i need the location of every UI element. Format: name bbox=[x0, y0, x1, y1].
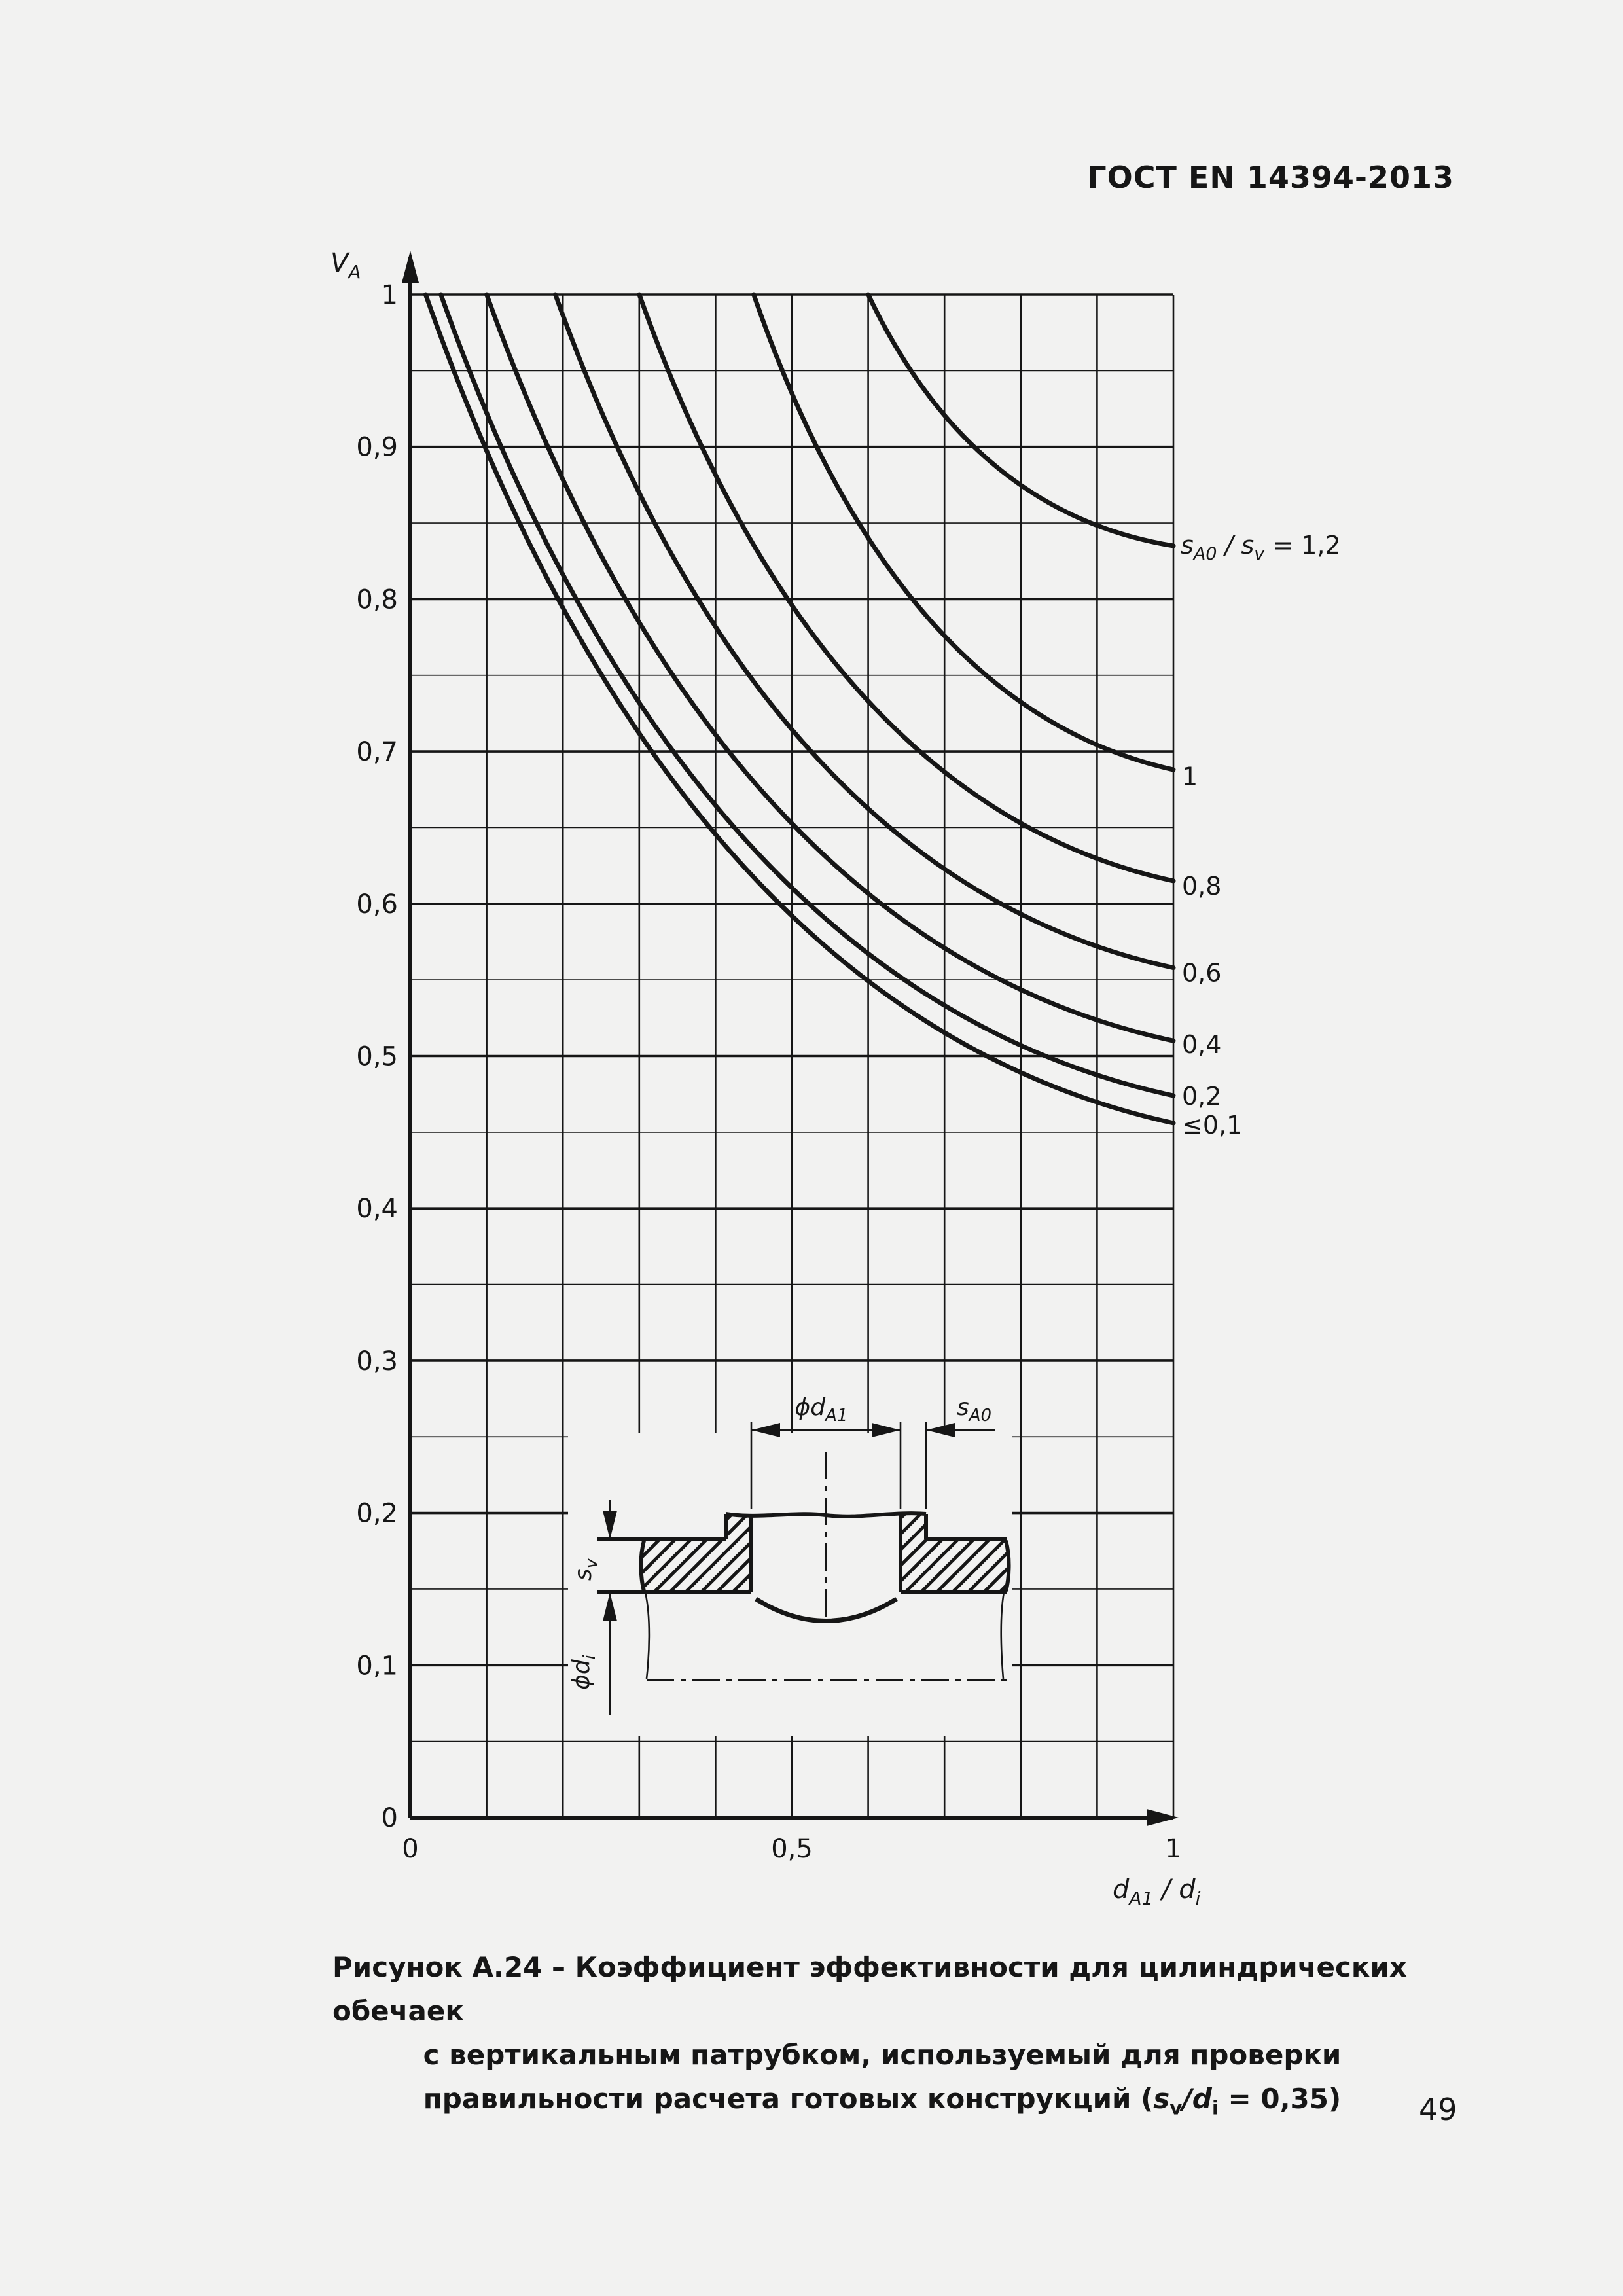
y-tick-label: 0,4 bbox=[356, 1194, 398, 1224]
y-tick-label: 0,1 bbox=[356, 1651, 398, 1681]
y-axis-arrow-icon bbox=[402, 251, 419, 283]
nozzle-wall-left-hatch bbox=[726, 1514, 751, 1592]
curve-label-sA0/sv = 0,8: 0,8 bbox=[1182, 872, 1221, 901]
curve-label-sA0/sv = 0,2: 0,2 bbox=[1182, 1082, 1221, 1111]
curve-label-sA0/sv = 0,6: 0,6 bbox=[1182, 959, 1221, 988]
curve-sA0/sv = 0,6 bbox=[556, 295, 1173, 968]
curve-sA0/sv = 0,4 bbox=[487, 295, 1173, 1041]
dim-label-sA0: sA0 bbox=[957, 1394, 991, 1426]
y-axis-title: VA bbox=[330, 248, 361, 283]
y-tick-label: 0 bbox=[382, 1803, 398, 1833]
y-tick-label: 0,5 bbox=[356, 1042, 398, 1072]
y-tick-label: 1 bbox=[382, 280, 398, 310]
curve-sA0/sv = 0,2 bbox=[441, 295, 1173, 1096]
caption-line-2: с вертикальным патрубком, используемый д… bbox=[332, 2033, 1432, 2077]
inset-diagram: ϕdA1 sA0 sv ϕdi bbox=[568, 1394, 1012, 1736]
y-tick-label: 0,2 bbox=[356, 1499, 398, 1529]
curve-label-sA0/sv <= 0,1: ≤0,1 bbox=[1182, 1111, 1242, 1139]
caption-line-1: Рисунок А.24 – Коэффициент эффективности… bbox=[332, 1945, 1432, 2033]
y-tick-label: 0,8 bbox=[356, 584, 398, 615]
curve-label-1-2: sA0 / sv = 1,2 bbox=[1181, 531, 1341, 564]
page-number: 49 bbox=[1419, 2092, 1457, 2127]
curve-label-sA0/sv = 1: 1 bbox=[1182, 762, 1198, 791]
dim-label-phi-dA1: ϕdA1 bbox=[795, 1394, 848, 1426]
curve-label-sA0/sv = 0,4: 0,4 bbox=[1182, 1030, 1221, 1059]
y-tick-label: 0,6 bbox=[356, 889, 398, 920]
caption-line-3: правильности расчета готовых конструкций… bbox=[332, 2077, 1432, 2130]
y-tick-label: 0,3 bbox=[356, 1346, 398, 1376]
x-tick-label: 1 bbox=[1165, 1834, 1181, 1864]
x-axis-title: dA1 / di bbox=[1113, 1874, 1201, 1909]
shell-wall-left-hatch bbox=[643, 1539, 726, 1592]
curve-sA0/sv = 0,8 bbox=[639, 295, 1173, 881]
x-tick-label: 0 bbox=[402, 1834, 418, 1864]
document-page: ГОСТ EN 14394-2013 bbox=[0, 0, 1623, 2296]
y-tick-label: 0,7 bbox=[356, 737, 398, 767]
shell-wall-right-hatch bbox=[926, 1539, 1007, 1592]
nozzle-wall-right-hatch bbox=[901, 1514, 926, 1592]
chart-curves bbox=[425, 295, 1173, 1123]
x-tick-label: 0,5 bbox=[771, 1834, 813, 1864]
figure-caption: Рисунок А.24 – Коэффициент эффективности… bbox=[332, 1945, 1432, 2130]
dim-label-phi-di: ϕdi bbox=[568, 1654, 599, 1690]
y-tick-label: 0,9 bbox=[356, 433, 398, 463]
